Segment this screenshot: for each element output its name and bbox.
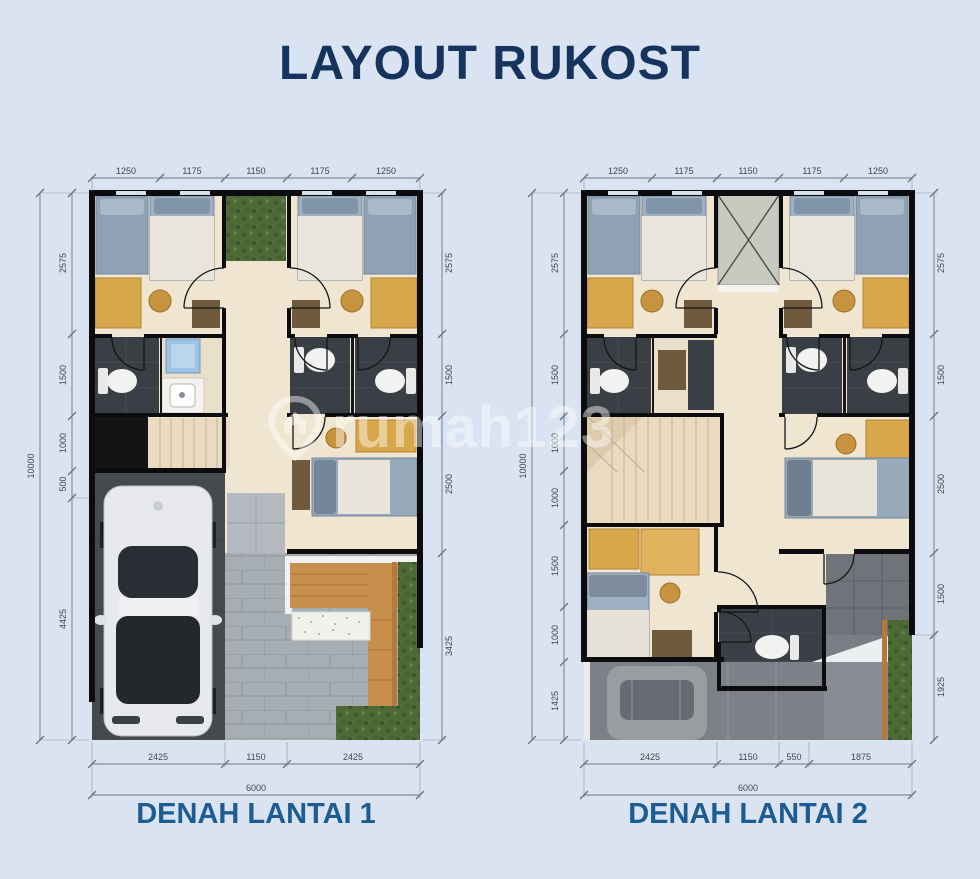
dim-label: 1500 (58, 365, 68, 385)
under-stair-storage (92, 416, 148, 468)
dim-label: 2575 (936, 253, 946, 273)
floor-plan-1: 1250 1175 1150 1175 1250 2575 1500 1000 … (0, 150, 490, 850)
layout-canvas: LAYOUT RUKOST (0, 0, 980, 879)
dim-label: 10000 (518, 453, 528, 478)
dim-label: 1250 (868, 166, 888, 176)
dim-label: 2425 (640, 752, 660, 762)
page-title: LAYOUT RUKOST (0, 36, 980, 91)
car (94, 486, 222, 736)
bathroom-right-1 (782, 337, 842, 414)
dim-label: 1500 (444, 365, 454, 385)
kitchen-nook (162, 337, 222, 413)
dim-label: 1925 (936, 677, 946, 697)
dim-label: 1250 (116, 166, 136, 176)
void-x (718, 195, 779, 292)
dim-label: 2575 (58, 253, 68, 273)
dim-label: 1500 (550, 556, 560, 576)
plan-1-label: DENAH LANTAI 1 (0, 798, 512, 831)
floor-plan-1-drawing: 1250 1175 1150 1175 1250 2575 1500 1000 … (0, 150, 490, 810)
dim-label: 1150 (738, 166, 757, 176)
dim-label: 1500 (550, 365, 560, 385)
bathroom-right-2 (355, 337, 417, 414)
staircase (587, 416, 720, 523)
floor-plan-2-drawing: 1250 1175 1150 1175 1250 2575 1500 1000 … (492, 150, 980, 810)
garden-right (882, 620, 912, 740)
dim-label: 2575 (550, 253, 560, 273)
dim-label: 4425 (58, 609, 68, 629)
bathroom-left (93, 337, 159, 414)
bathroom-right-2 (847, 337, 909, 414)
dim-label: 2425 (148, 752, 168, 762)
dim-label: 1875 (851, 752, 871, 762)
dim-label: 1000 (58, 433, 68, 453)
dim-label: 1175 (802, 166, 821, 176)
bathroom-left (585, 337, 651, 414)
stepping-tiles (227, 493, 285, 553)
dim-label: 1175 (182, 166, 201, 176)
driveway (225, 553, 287, 740)
dim-label: 1000 (550, 433, 560, 453)
dim-label: 1150 (246, 752, 265, 762)
utility-closet (654, 337, 714, 413)
dim-label: 1425 (550, 691, 560, 711)
garden-patch-top (226, 195, 286, 261)
dim-label: 1250 (376, 166, 396, 176)
dim-label: 1500 (936, 584, 946, 604)
plan-2-label: DENAH LANTAI 2 (492, 798, 980, 831)
dim-label: 3425 (444, 636, 454, 656)
dim-label: 550 (786, 752, 801, 762)
dim-label: 10000 (26, 453, 36, 478)
dim-label: 6000 (738, 783, 758, 793)
dim-label: 1150 (246, 166, 265, 176)
dim-label: 1175 (310, 166, 329, 176)
dim-label: 500 (58, 476, 68, 491)
dim-label: 1150 (738, 752, 757, 762)
staircase (148, 418, 230, 468)
dim-label: 6000 (246, 783, 266, 793)
dim-label: 2575 (444, 253, 454, 273)
dim-label: 2500 (444, 474, 454, 494)
bathroom-right-1 (290, 337, 350, 414)
floor-plan-2: 1250 1175 1150 1175 1250 2575 1500 1000 … (492, 150, 980, 850)
dim-label: 2500 (936, 474, 946, 494)
dim-label: 1250 (608, 166, 628, 176)
dim-label: 2425 (343, 752, 363, 762)
dim-label: 1000 (550, 625, 560, 645)
dim-label: 1000 (550, 488, 560, 508)
dim-label: 1175 (674, 166, 693, 176)
dim-label: 1500 (936, 365, 946, 385)
